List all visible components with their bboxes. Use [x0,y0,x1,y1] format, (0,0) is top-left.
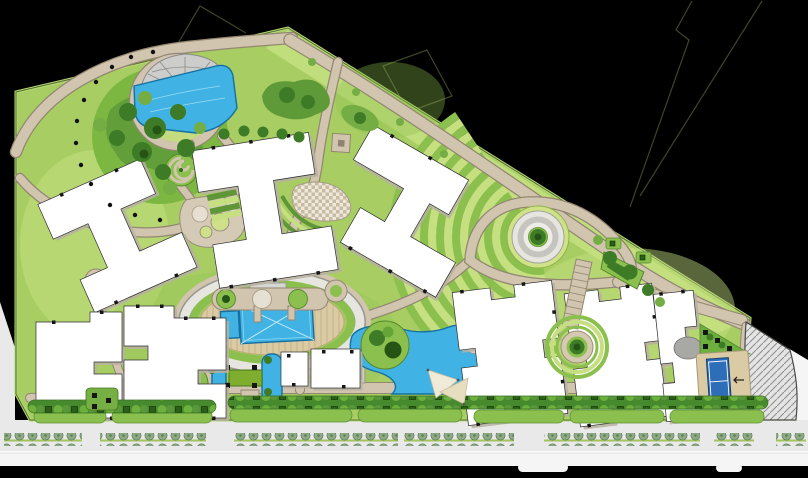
curb-gap [716,464,742,472]
landscape-master-plan: Property boundary line Public street Str… [0,0,808,478]
sidewalk [0,454,808,466]
courtyard-circle: Circular courtyard garden [547,317,607,377]
clubhouse: Clubhouse block [281,349,363,391]
curb-gap [518,463,568,472]
path-junction-pad: Path junction pad [331,133,350,152]
pocket-planters: Square planter boxes [86,388,118,410]
lawn-panel [229,370,262,386]
far-curb-band [0,466,808,478]
ring-plaza: Central ring plaza with tree [507,206,569,268]
lane-line [0,451,808,452]
street-median-tree-row: Street median tree row [4,433,806,446]
site-plan-canvas: Property boundary line Public street Str… [0,0,808,478]
